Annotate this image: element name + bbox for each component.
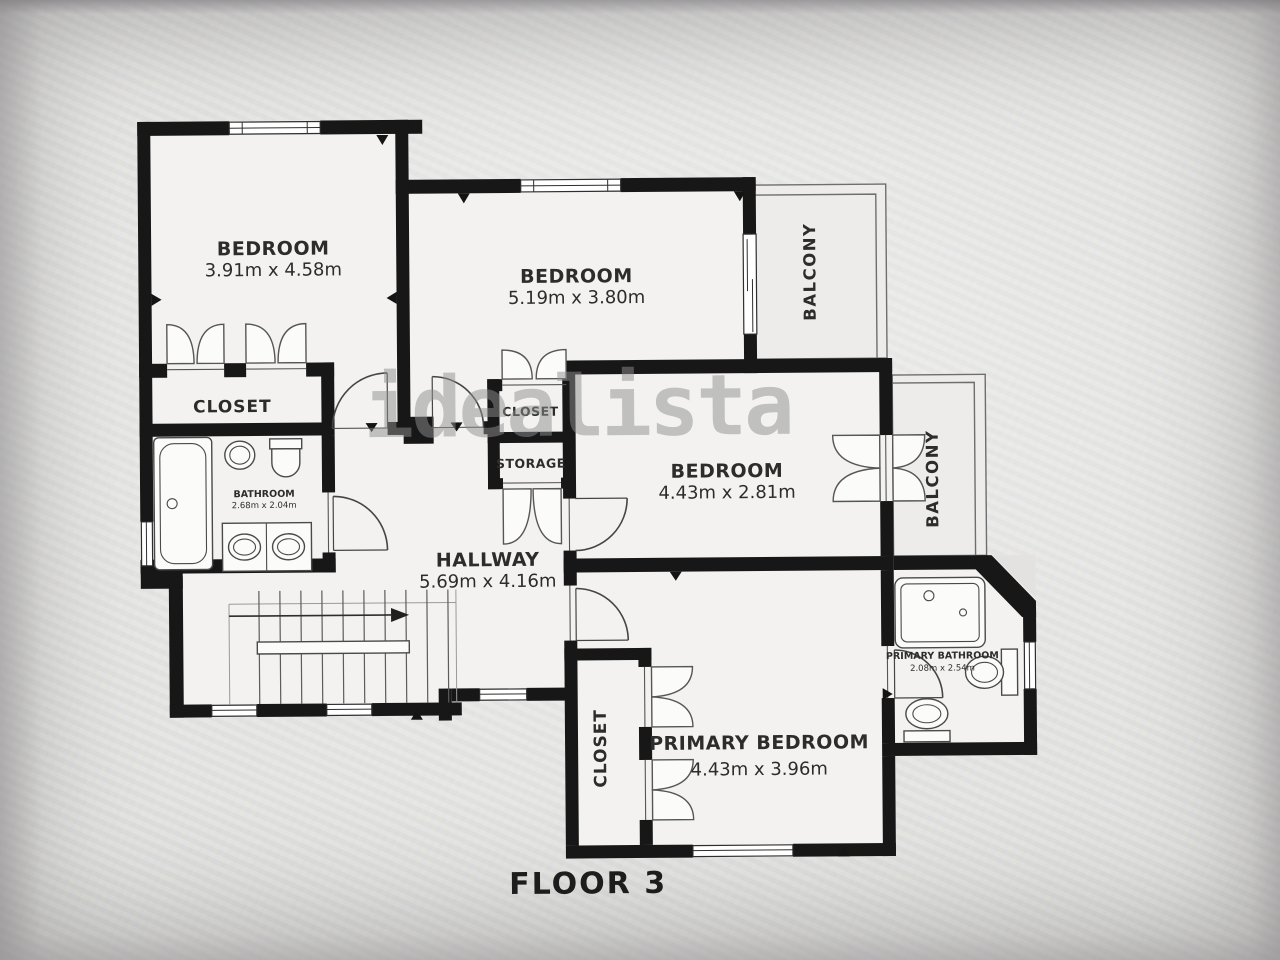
- label-hallway: HALLWAY: [436, 549, 540, 572]
- label-bedroom-top-middle: BEDROOM: [520, 265, 633, 288]
- room-floor-primary-bedroom: [564, 570, 896, 859]
- dims-hallway: 5.69m x 4.16m: [419, 571, 556, 593]
- window-icon: [521, 179, 621, 192]
- window-icon: [141, 522, 152, 566]
- label-bedroom-top-left: BEDROOM: [217, 237, 330, 260]
- dims-bedroom-top-middle: 5.19m x 3.80m: [508, 287, 645, 309]
- dims-primary-bathroom: 2.08m x 2.54m: [910, 663, 975, 674]
- label-balcony-top: BALCONY: [800, 222, 820, 320]
- screen-photo: BEDROOM 3.91m x 4.58m BEDROOM 5.19m x 3.…: [0, 0, 1280, 960]
- bathtub-icon: [154, 437, 213, 569]
- window-icon: [212, 705, 257, 716]
- window-icon: [229, 122, 320, 135]
- double-sink-vanity-icon: [222, 523, 311, 572]
- dims-bedroom-top-left: 3.91m x 4.58m: [205, 259, 342, 281]
- dims-bathroom: 2.68m x 2.04m: [232, 501, 297, 512]
- label-bathroom: BATHROOM: [233, 489, 294, 500]
- floor-title: FLOOR 3: [509, 866, 667, 902]
- watermark: idealista: [363, 363, 792, 450]
- label-storage: STORAGE: [496, 456, 566, 472]
- dims-primary-bedroom: 4.43m x 3.96m: [691, 759, 828, 781]
- shower-tray-icon: [895, 577, 986, 648]
- label-closet-bedroom-top-left: CLOSET: [193, 397, 272, 418]
- floor-plan: BEDROOM 3.91m x 4.58m BEDROOM 5.19m x 3.…: [0, 0, 1280, 960]
- label-balcony-right: BALCONY: [923, 429, 943, 527]
- stair-rail: [257, 641, 409, 654]
- window-icon: [1024, 642, 1035, 689]
- bidet-icon: [270, 439, 302, 477]
- toilet-icon: [225, 441, 255, 469]
- window-icon: [327, 704, 372, 715]
- dims-bedroom-middle-right: 4.43m x 2.81m: [658, 482, 795, 504]
- label-primary-bathroom: PRIMARY BATHROOM: [886, 650, 999, 662]
- label-closet-primary: CLOSET: [591, 709, 612, 788]
- label-bedroom-middle-right: BEDROOM: [671, 460, 784, 483]
- room-floor-balcony-top: [754, 184, 888, 359]
- floor-plan-svg: BEDROOM 3.91m x 4.58m BEDROOM 5.19m x 3.…: [0, 0, 1280, 960]
- label-primary-bedroom: PRIMARY BEDROOM: [649, 731, 869, 755]
- window-icon: [693, 845, 793, 857]
- toilet-icon: [904, 699, 950, 742]
- window-icon: [480, 689, 527, 700]
- sliding-door-icon: [743, 234, 757, 334]
